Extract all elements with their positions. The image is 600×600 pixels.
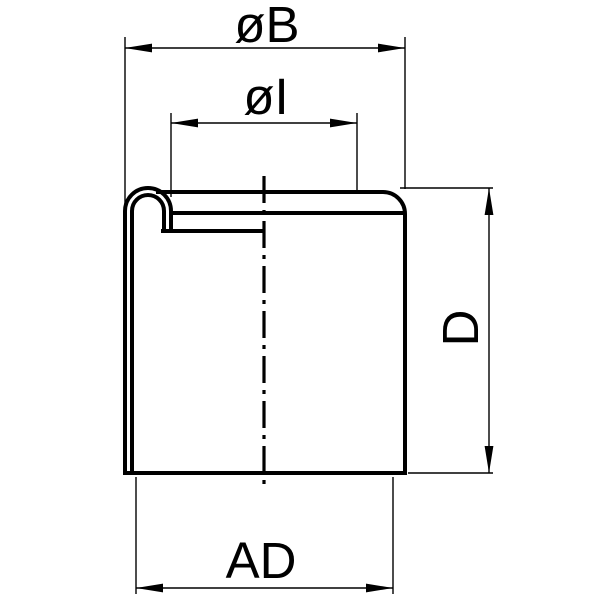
top-surface-and-right-edge — [156, 192, 405, 473]
dim-i-label: øI — [243, 68, 288, 125]
dim-d-label: D — [432, 310, 489, 347]
dim-b-arrow-left — [125, 44, 152, 53]
dim-i-arrow-left — [171, 119, 198, 128]
dim-d-arrow-bottom — [485, 446, 494, 473]
dimension-height: D — [400, 188, 493, 473]
dim-d-arrow-top — [485, 188, 494, 215]
technical-drawing-canvas: øB øI D AD — [0, 0, 600, 600]
end-cap-dimension-drawing: øB øI D AD — [0, 0, 600, 600]
dim-i-arrow-right — [330, 119, 357, 128]
dim-b-arrow-right — [378, 44, 405, 53]
dim-ad-label: AD — [226, 532, 297, 589]
dim-ad-arrow-right — [366, 584, 393, 593]
dim-b-label: øB — [234, 0, 299, 53]
dimension-fit-diameter: AD — [136, 477, 393, 594]
dim-ad-arrow-left — [136, 584, 163, 593]
left-wall-inner-and-curl-inner — [132, 195, 164, 473]
